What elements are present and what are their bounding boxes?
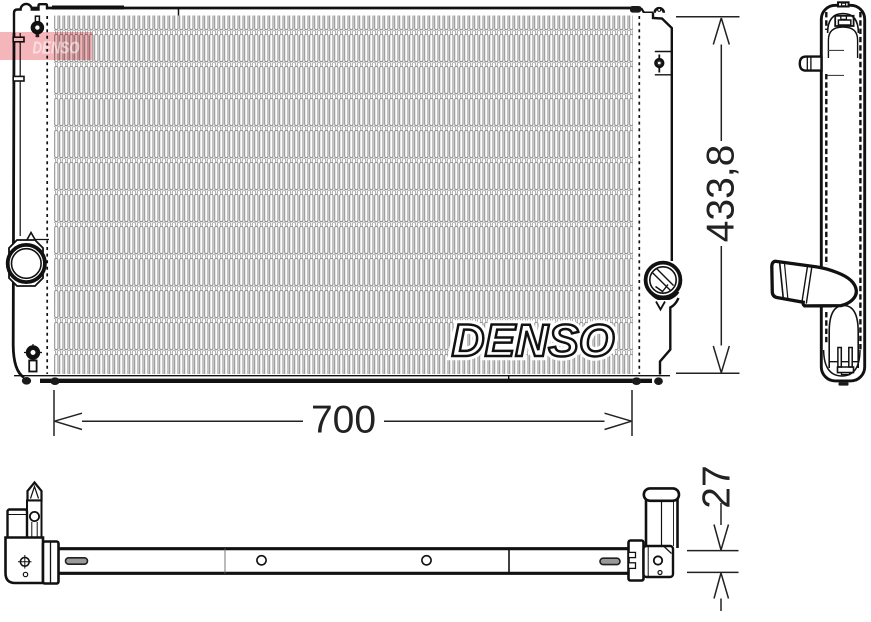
svg-text:433,8: 433,8 — [700, 145, 743, 243]
svg-text:DENSO: DENSO — [33, 38, 80, 58]
svg-text:27: 27 — [696, 465, 739, 508]
svg-text:700: 700 — [311, 399, 376, 442]
svg-text:DENSO: DENSO — [452, 315, 615, 366]
